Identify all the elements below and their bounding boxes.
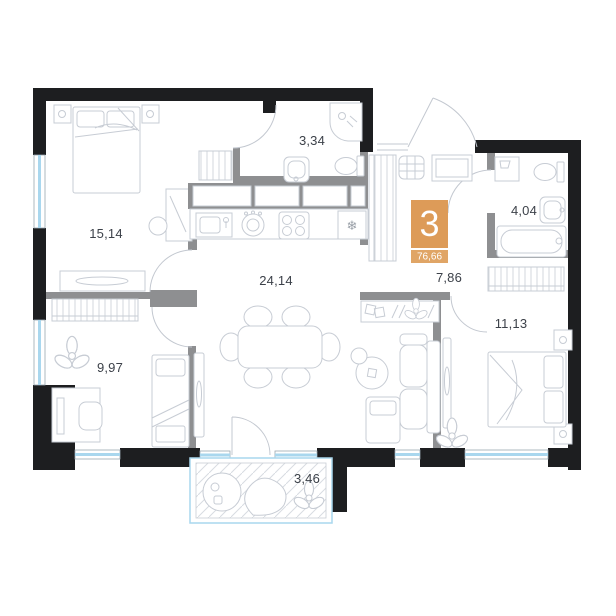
decor-shelf <box>361 301 439 322</box>
door-room2 <box>152 307 192 347</box>
toilet-tank <box>557 162 564 182</box>
dresser <box>60 271 145 291</box>
door-entrance <box>408 98 477 147</box>
wall-bath2-left-a <box>487 153 495 170</box>
wall-divider-stub <box>150 290 197 307</box>
pillow <box>156 359 185 376</box>
balcony-table <box>203 473 241 511</box>
wall-bottom-corner <box>548 448 581 467</box>
label-room-second: 9,97 <box>97 360 123 375</box>
wall-top <box>33 88 373 101</box>
window-bedroom2 <box>465 450 548 459</box>
floor-plan-page: ❄ <box>0 0 616 616</box>
wall-hallway-living <box>360 292 440 300</box>
dining-chair <box>244 306 272 328</box>
wall-bath2-left-b <box>487 213 495 250</box>
chaise-pillow <box>370 401 396 415</box>
wall-bedroom2-door-stub <box>440 292 450 300</box>
fridge-snowflake-icon: ❄ <box>347 218 358 233</box>
door-bedroom2 <box>451 296 487 332</box>
badge-rooms-number: 3 <box>419 203 439 244</box>
wall-cabinet <box>255 186 299 206</box>
wardrobe <box>52 299 138 321</box>
dining-chair <box>244 366 272 388</box>
doormat <box>399 156 424 179</box>
toilet <box>335 158 357 175</box>
shower <box>330 103 362 141</box>
dining-table <box>238 326 322 368</box>
sofa-cushion <box>400 345 427 387</box>
wardrobe <box>488 267 564 291</box>
dining-chair <box>282 366 310 388</box>
floor-plan-drawing: ❄ <box>0 0 616 616</box>
wall-left-mid <box>33 228 46 320</box>
wall-cabinet <box>193 186 251 206</box>
plant <box>53 336 91 370</box>
toilet <box>534 164 556 181</box>
sofa-armrest <box>400 334 427 345</box>
wall-right <box>568 140 581 470</box>
wall-cabinet <box>303 186 347 206</box>
toilet-tank <box>357 156 364 176</box>
stool <box>149 217 167 235</box>
pillow <box>544 391 563 423</box>
badge-total-area: 76,66 <box>417 252 442 263</box>
label-bathroom-guest: 3,34 <box>299 133 325 148</box>
wall-rooms-divider <box>46 292 150 299</box>
wall-jamb <box>263 99 276 113</box>
wall-left-top <box>33 88 46 155</box>
entrance-sidelight <box>377 144 408 150</box>
nightstand <box>54 105 71 123</box>
balcony-cup <box>211 483 219 491</box>
label-bedroom-second: 11,13 <box>495 316 528 331</box>
desk-chair <box>79 402 102 430</box>
door-balcony <box>232 417 270 455</box>
wall-top-right <box>475 140 581 153</box>
balcony-cup-2 <box>214 496 222 504</box>
side-table <box>351 348 367 364</box>
door-bedroom1 <box>150 250 192 292</box>
sofa-cushion <box>400 389 427 429</box>
hall-wardrobe <box>369 155 396 261</box>
window-room2 <box>34 320 45 385</box>
bedroom-main-furniture <box>54 105 192 291</box>
living-room-furniture <box>194 306 440 443</box>
wall-cabinet <box>351 186 365 206</box>
label-bedroom-main: 15,14 <box>89 226 123 241</box>
pillow <box>77 111 104 127</box>
label-hallway: 7,86 <box>436 270 462 285</box>
balcony <box>190 458 332 523</box>
nightstand <box>554 330 572 350</box>
closet-nook <box>199 151 232 180</box>
dining-chair <box>282 306 310 328</box>
unit-badge: 3 76,66 <box>411 200 448 263</box>
label-kitchen-living: 24,14 <box>259 273 293 288</box>
tv-panel-living <box>194 353 204 437</box>
window-room2-bottom <box>75 450 120 459</box>
label-bathroom-main: 4,04 <box>511 203 537 218</box>
sofa-back <box>427 341 440 433</box>
wall-bottom-3 <box>420 448 465 467</box>
label-balcony: 3,46 <box>294 471 320 486</box>
window-bedroom1 <box>34 155 45 228</box>
window-living-bottom <box>395 450 420 459</box>
pillow <box>544 356 563 388</box>
wall-balcony-stem <box>331 467 347 512</box>
bedroom-second-furniture <box>435 267 572 449</box>
wall-bottom-1 <box>120 448 200 467</box>
nightstand <box>142 105 159 123</box>
